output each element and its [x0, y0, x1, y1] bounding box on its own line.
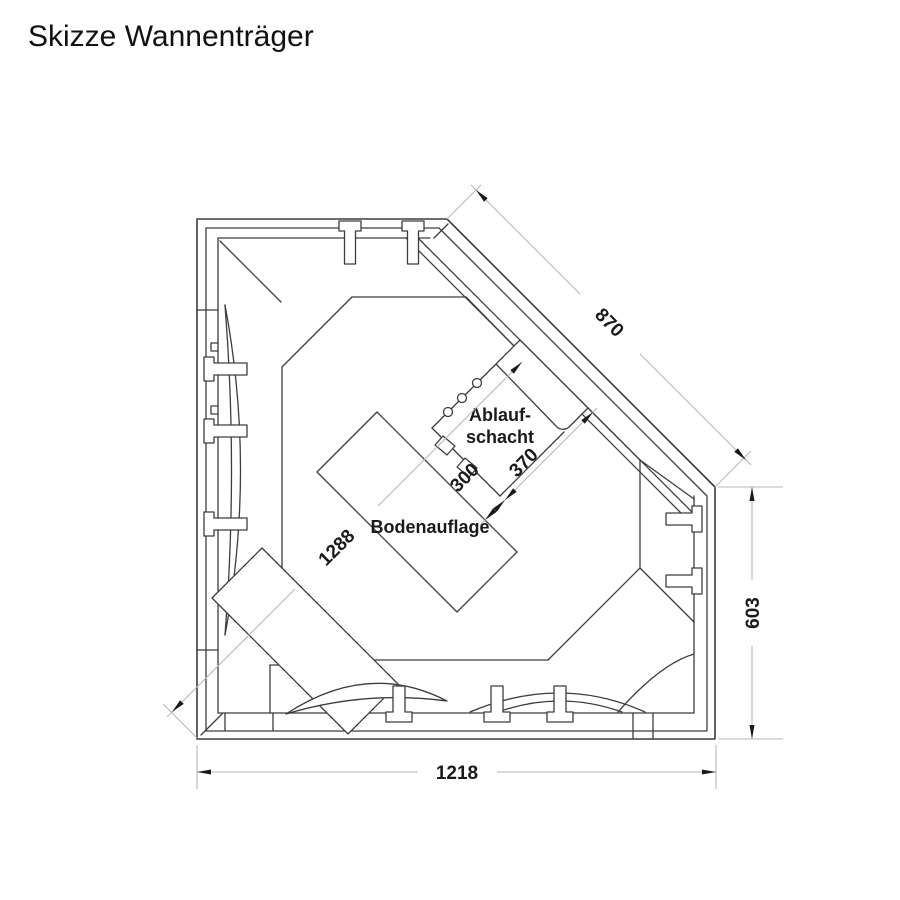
bathtub-carrier-drawing: Ablauf- schacht Bodenauflage — [0, 0, 900, 900]
bottom-right-quarter-arc — [618, 654, 694, 712]
anchor-right-1 — [666, 506, 702, 532]
sketch-page: Skizze Wannenträger — [0, 0, 900, 900]
dimension-1218: 1218 — [197, 745, 716, 789]
dim-370-value: 370 — [505, 444, 542, 481]
basin-nw-chamfer — [282, 297, 352, 367]
anchor-bottom-3 — [547, 686, 573, 722]
dim-1288-ext — [163, 704, 197, 738]
rim-band-corner-step — [434, 224, 448, 238]
dim-870-value: 870 — [590, 304, 627, 341]
corner-short-diagonal — [201, 714, 222, 735]
dimension-603: 603 — [718, 487, 783, 739]
corner-slope-line — [220, 241, 281, 302]
dim-1218-arrow-right — [702, 770, 716, 775]
drain-shaft-label-line1: Ablauf- — [469, 405, 531, 425]
shaft-notch-2 — [458, 394, 467, 403]
drain-shaft-label-line2: schacht — [466, 427, 534, 447]
shaft-notch-3 — [473, 379, 482, 388]
dim-1218-value: 1218 — [436, 763, 478, 784]
anchor-bottom-2 — [484, 686, 510, 722]
shaft-notch-1 — [444, 408, 453, 417]
basin-ne2-edge — [588, 408, 640, 460]
dim-1288-value: 1288 — [315, 526, 360, 571]
anchor-right-2 — [666, 568, 702, 594]
wall-jog-2 — [211, 406, 218, 414]
anchor-left-1 — [204, 357, 247, 381]
dim-603-value: 603 — [743, 597, 764, 629]
anchor-left-3 — [204, 512, 247, 536]
dim-603-arrow-bottom — [750, 725, 755, 739]
dim-870-ext-2 — [715, 451, 751, 487]
dim-870-line-1 — [471, 185, 580, 294]
dim-603-arrow-top — [750, 487, 755, 501]
anchor-top-1 — [339, 221, 361, 264]
anchor-top-2 — [402, 221, 424, 264]
wall-jog-1 — [211, 343, 218, 351]
basin-se-chamfer — [548, 568, 640, 660]
dim-870-line-2 — [640, 354, 751, 465]
dim-1218-arrow-left — [197, 770, 211, 775]
floor-support-label: Bodenauflage — [370, 517, 489, 537]
basin-ne-chamfer — [466, 297, 514, 346]
